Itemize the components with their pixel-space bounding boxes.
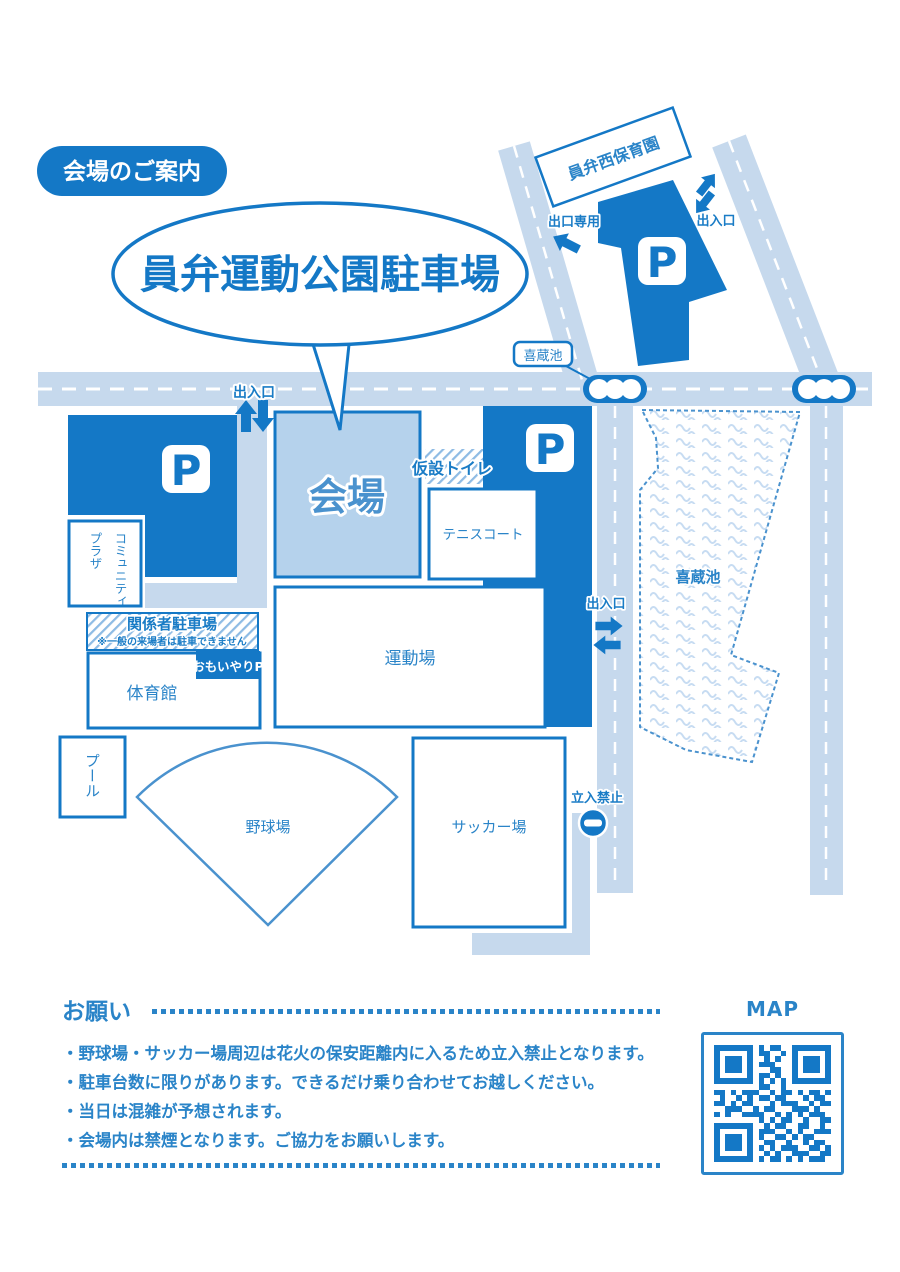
gate-label-right: 出入口 — [586, 596, 625, 612]
gate-label-northeast: 出入口 — [696, 213, 735, 229]
note-item: ・当日は混雑が予想されます。 — [62, 1098, 291, 1122]
no-entry-label: 立入禁止 — [571, 790, 623, 806]
parking-icon-letter: P — [647, 238, 678, 287]
parking-icon: P — [526, 424, 574, 474]
qr-map-label: MAP — [701, 997, 844, 1021]
culvert-marker-right — [792, 375, 856, 403]
tennis-court-label: テニスコート — [443, 527, 524, 543]
note-item: ・駐車台数に限りがあります。できるだけ乗り合わせてお越しください。 — [62, 1069, 604, 1093]
culvert-marker-left — [583, 375, 647, 403]
notes-heading: お願い — [62, 992, 131, 1026]
community-plaza-building — [69, 521, 141, 606]
kizo-pond-tag-label: 喜蔵池 — [523, 349, 562, 364]
staff-parking-label: 関係者駐車場 — [127, 615, 217, 633]
bubble-title: 員弁運動公園駐車場 — [140, 252, 500, 298]
parking-icon-letter: P — [535, 425, 566, 474]
qr-grid — [714, 1045, 831, 1162]
pool-label: プール — [83, 753, 101, 798]
no-entry-sign-icon — [579, 809, 607, 837]
page-title: 会場のご案内 — [63, 158, 201, 185]
venue-label: 会場 — [309, 475, 385, 519]
gym-label: 体育館 — [127, 684, 178, 704]
note-item: ・野球場・サッカー場周辺は花火の保安距離内に入るため立入禁止となります。 — [62, 1040, 654, 1064]
staff-parking-note: ※一般の来場者は駐車できません — [97, 635, 246, 648]
exit-only-label: 出口専用 — [548, 214, 600, 230]
kizo-pond-label: 喜蔵池 — [675, 568, 720, 586]
qr-code — [701, 1032, 844, 1175]
community-plaza-label-line2: プラザ — [88, 532, 103, 570]
baseball-field-label: 野球場 — [245, 818, 290, 836]
parking-icon-letter: P — [171, 446, 202, 495]
soccer-field-label: サッカー場 — [451, 818, 526, 836]
gate-label-top: 出入口 — [233, 384, 275, 401]
page-title-badge: 会場のご案内 — [37, 146, 227, 196]
parking-icon: P — [638, 237, 686, 287]
parking-icon: P — [162, 445, 210, 495]
sports-field-label: 運動場 — [385, 649, 436, 669]
community-plaza-label-line1: コミュニティ — [113, 532, 128, 607]
kizo-pond — [640, 410, 800, 762]
venue-guide-page: 員弁西保育園 P P P 喜蔵池 会場のご案内 員弁運動公園 — [0, 0, 900, 1272]
dotted-rule-bottom — [62, 1163, 660, 1168]
omoiyari-parking-label: おもいやりP — [192, 659, 263, 674]
temp-toilet-label: 仮設トイレ — [411, 459, 492, 478]
note-item: ・会場内は禁煙となります。ご協力をお願いします。 — [62, 1127, 454, 1151]
dotted-rule-top — [152, 1009, 660, 1014]
